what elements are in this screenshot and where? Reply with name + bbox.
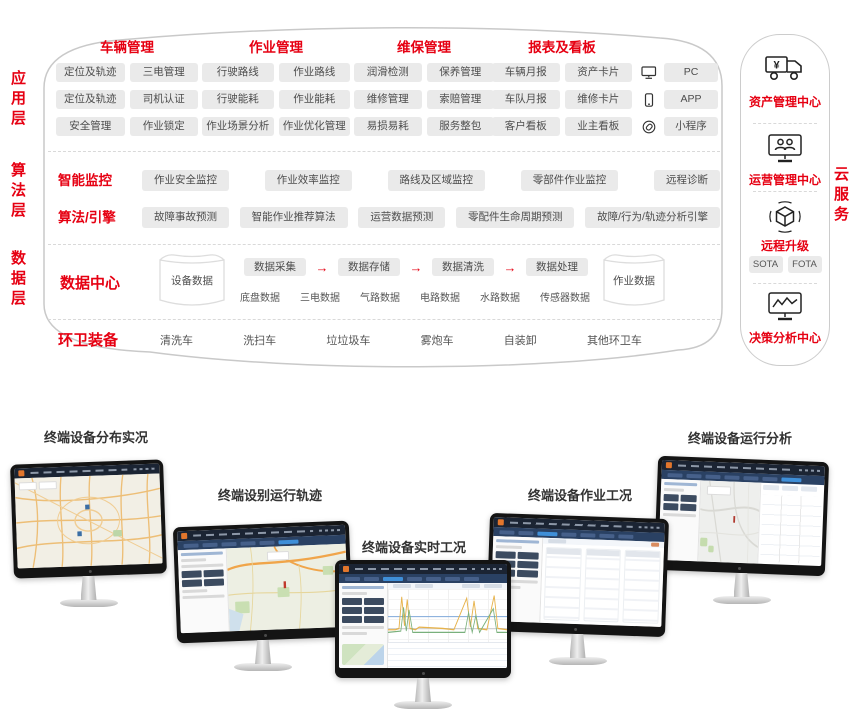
layer-label-application: 应用层 [8,70,26,130]
equipment-item: 垃垃圾车 [326,332,370,348]
arrow-right-icon: → [316,260,329,275]
feature-pill: 三电管理 [130,63,199,82]
dashboard-analysis-screen [658,460,825,566]
feature-pill: 行驶能耗 [202,90,274,109]
group-title: 维保管理 [354,36,494,54]
separator [753,123,817,124]
camera-dot [422,672,425,675]
mini-map [342,644,384,665]
screen-sidebar [178,548,230,633]
data-source: 电路数据 [420,289,460,304]
miniprogram-icon [640,119,658,135]
stat-columns [540,544,664,627]
user-strip [319,529,341,532]
group-title: 作业管理 [202,36,350,54]
feature-pill: 定位及轨迹 [56,63,125,82]
menu-strip [193,530,313,537]
dashboard-chart-screen [339,564,507,668]
logo-icon [18,470,24,476]
equipment-item: 自装卸 [504,332,537,348]
arrow-right-icon: → [504,260,517,275]
feature-pill: 作业路线 [279,63,351,82]
monitor-track [175,524,351,671]
separator [48,244,720,245]
feature-pill: 定位及轨迹 [56,90,125,109]
svg-text:¥: ¥ [773,60,780,72]
algo-pill: 运营数据预测 [358,207,445,228]
camera-dot [263,634,266,637]
logo-icon [666,462,672,468]
layer-label-algorithm: 算法层 [8,162,26,222]
operation-data-cylinder: 作业数据 [600,250,668,310]
feature-pill: 保养管理 [427,63,495,82]
menu-strip [678,465,793,471]
data-source: 传感器数据 [540,289,590,304]
dashboard-track-screen [177,525,349,633]
pipeline-step: 数据处理 [526,258,588,276]
camera-dot [574,628,577,631]
monitor-chart-icon [741,291,829,323]
feature-pill: 润滑检测 [354,63,422,82]
group-reports-dashboards: 报表及看板 车辆月报资产卡片 车队月报维修卡片 客户看板业主看板 [492,36,632,144]
monitor-title: 终端设备作业工况 [528,485,632,504]
logo-icon [498,519,504,525]
feature-pill: 服务整包 [427,117,495,136]
ota-tags: SOTA FOTA [741,256,829,273]
data-center-label: 数据中心 [60,272,120,293]
logo-icon [343,566,349,572]
stats-tabs [763,485,822,495]
cloud-section-label: 资产管理中心 [741,93,829,110]
algo-pill: 故障/行为/轨迹分析引擎 [585,207,720,228]
cloud-section-label: 决策分析中心 [741,329,829,346]
app-icon [640,92,658,108]
monitor-stand [656,573,827,604]
separator [48,151,720,152]
monitor-stand [335,678,511,709]
user-strip [481,568,503,570]
algo-row-label: 算法/引擎 [58,207,138,228]
monitor-users-icon [741,133,829,165]
feature-pill: 车队月报 [492,90,560,109]
menu-strip [355,568,475,570]
map-button [706,486,730,496]
algo-pill: 故障事故预测 [142,207,229,228]
feature-pill: 作业优化管理 [279,117,351,136]
feature-pill: 索赔管理 [427,90,495,109]
algo-pill: 路线及区域监控 [388,170,486,191]
monitor-bezel [335,560,511,678]
data-table [388,642,507,669]
logo-icon [181,533,187,539]
group-title: 报表及看板 [492,36,632,54]
feature-pill: 维修卡片 [565,90,633,109]
data-source: 水路数据 [480,289,520,304]
algo-pill: 作业效率监控 [265,170,352,191]
map-view [15,473,163,568]
layer-label-data: 数据层 [8,250,26,310]
arrow-right-icon: → [410,260,423,275]
map-button [39,481,57,490]
monitor-stand [175,640,351,671]
separator [753,283,817,284]
screen-sidebar [339,583,388,668]
camera-dot [89,570,92,573]
algo-row-engines: 故障事故预测 智能作业推荐算法 运营数据预测 零配件生命周期预测 故障/行为/轨… [142,207,720,228]
feature-pill: 易损易耗 [354,117,422,136]
equipment-item: 洗扫车 [243,332,276,348]
monitor-analysis [656,459,827,604]
feature-pill: 作业能耗 [279,90,351,109]
screen-subnav [339,574,507,583]
spacer [640,36,718,54]
stats-grid [761,495,822,564]
feature-pill: 车辆月报 [492,63,560,82]
map-button [267,551,289,561]
data-source: 三电数据 [300,289,340,304]
pipeline-step: 数据清洗 [432,258,494,276]
monitor-operation [488,516,667,665]
user-strip [133,468,155,471]
monitor-bezel [486,513,669,637]
user-strip [639,526,661,529]
device-data-cylinder: 设备数据 [156,250,228,310]
feature-pill: 作业场景分析 [202,117,274,136]
algo-pill: 零部件作业监控 [521,170,619,191]
data-pipeline: 数据采集 → 数据存储 → 数据清洗 → 数据处理 [244,258,588,276]
algo-pill: 智能作业推荐算法 [240,207,348,228]
cylinder-label: 作业数据 [600,250,668,310]
cloud-section-label: 远程升级 [741,237,829,254]
user-strip [799,469,821,472]
truck-yen-icon: ¥ [741,51,829,85]
separator [753,191,817,192]
monitor-title: 终端设别运行轨迹 [218,485,322,504]
map-view [698,480,761,563]
monitor-distribution [12,462,165,607]
group-operation-management: 作业管理 行驶路线作业路线 行驶能耗作业能耗 作业场景分析作业优化管理 [202,36,350,144]
algo-row-label: 智能监控 [58,170,138,191]
feature-pill: 业主看板 [565,117,633,136]
equipment-item: 其他环卫车 [587,332,642,348]
menu-strip [30,469,127,474]
equipment-item: 雾炮车 [421,332,454,348]
group-maintenance-management: 维保管理 润滑检测保养管理 维修管理索赔管理 易损易耗服务整包 [354,36,494,144]
platform-label: PC [664,63,718,82]
algo-pill: 远程诊断 [654,170,720,191]
monitor-stand [488,634,667,665]
monitor-realtime [335,560,511,709]
monitor-title: 终端设备实时工况 [362,537,466,556]
infographic-stage: 应用层 算法层 数据层 车辆管理 定位及轨迹三电管理 定位及轨迹司机认证 安全管… [0,0,851,715]
feature-pill: 维修管理 [354,90,422,109]
equipment-row: 清洗车 洗扫车 垃垃圾车 雾炮车 自装卸 其他环卫车 [160,332,642,348]
monitor-title: 终端设备运行分析 [688,428,792,447]
cloud-services-panel: ¥ 资产管理中心 运营管理中心 远程升级 SOTA FOTA [740,34,830,366]
menu-strip [510,522,633,528]
platform-label: 小程序 [664,117,718,136]
equipment-label: 环卫装备 [58,329,118,350]
cylinder-label: 设备数据 [156,250,228,310]
signal-chart [388,589,507,642]
monitor-bezel [654,456,829,576]
dashboard-table-screen [490,517,665,627]
cloud-side-label: 云服务 [831,166,849,226]
platform-label: APP [664,90,718,109]
monitor-stand [12,576,165,607]
sota-tag: SOTA [749,256,783,273]
camera-dot [738,567,741,570]
dashboard-map-screen [14,464,162,569]
feature-pill: 安全管理 [56,117,125,136]
feature-pill: 作业锁定 [130,117,199,136]
pipeline-step: 数据采集 [244,258,306,276]
cube-icon [741,199,829,235]
pipeline-step: 数据存储 [338,258,400,276]
cloud-section-label: 运营管理中心 [741,171,829,188]
monitor-bezel [10,459,167,578]
group-title: 车辆管理 [56,36,198,54]
map-button [19,482,37,491]
separator [48,319,720,320]
equipment-item: 清洗车 [160,332,193,348]
algo-pill: 作业安全监控 [142,170,229,191]
group-vehicle-management: 车辆管理 定位及轨迹三电管理 定位及轨迹司机认证 安全管理作业锁定 [56,36,198,144]
algo-pill: 零配件生命周期预测 [456,207,575,228]
platform-column: PC APP 小程序 [640,36,718,144]
monitor-title: 终端设备分布实况 [44,427,148,446]
screen-topbar [339,564,507,574]
feature-pill: 客户看板 [492,117,560,136]
feature-pill: 司机认证 [130,90,199,109]
feature-pill: 行驶路线 [202,63,274,82]
pc-icon [640,65,658,81]
algo-row-monitoring: 作业安全监控 作业效率监控 路线及区域监控 零部件作业监控 远程诊断 [142,170,720,191]
data-source: 气路数据 [360,289,400,304]
data-source: 底盘数据 [240,289,280,304]
feature-pill: 资产卡片 [565,63,633,82]
data-sources: 底盘数据 三电数据 气路数据 电路数据 水路数据 传感器数据 [240,289,590,304]
fota-tag: FOTA [788,256,822,273]
monitor-bezel [173,521,353,644]
stats-panel [758,483,825,566]
map-view [227,544,349,632]
